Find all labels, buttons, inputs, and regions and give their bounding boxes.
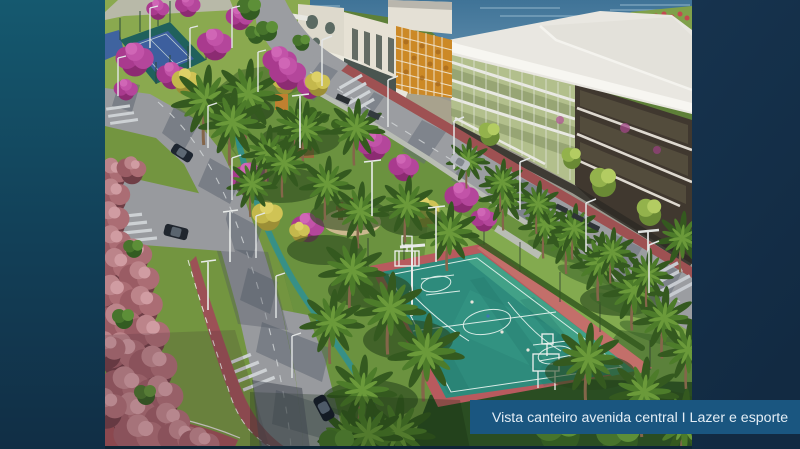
svg-text:Vista canteiro avenida central: Vista canteiro avenida central I Lazer e…: [492, 410, 788, 426]
